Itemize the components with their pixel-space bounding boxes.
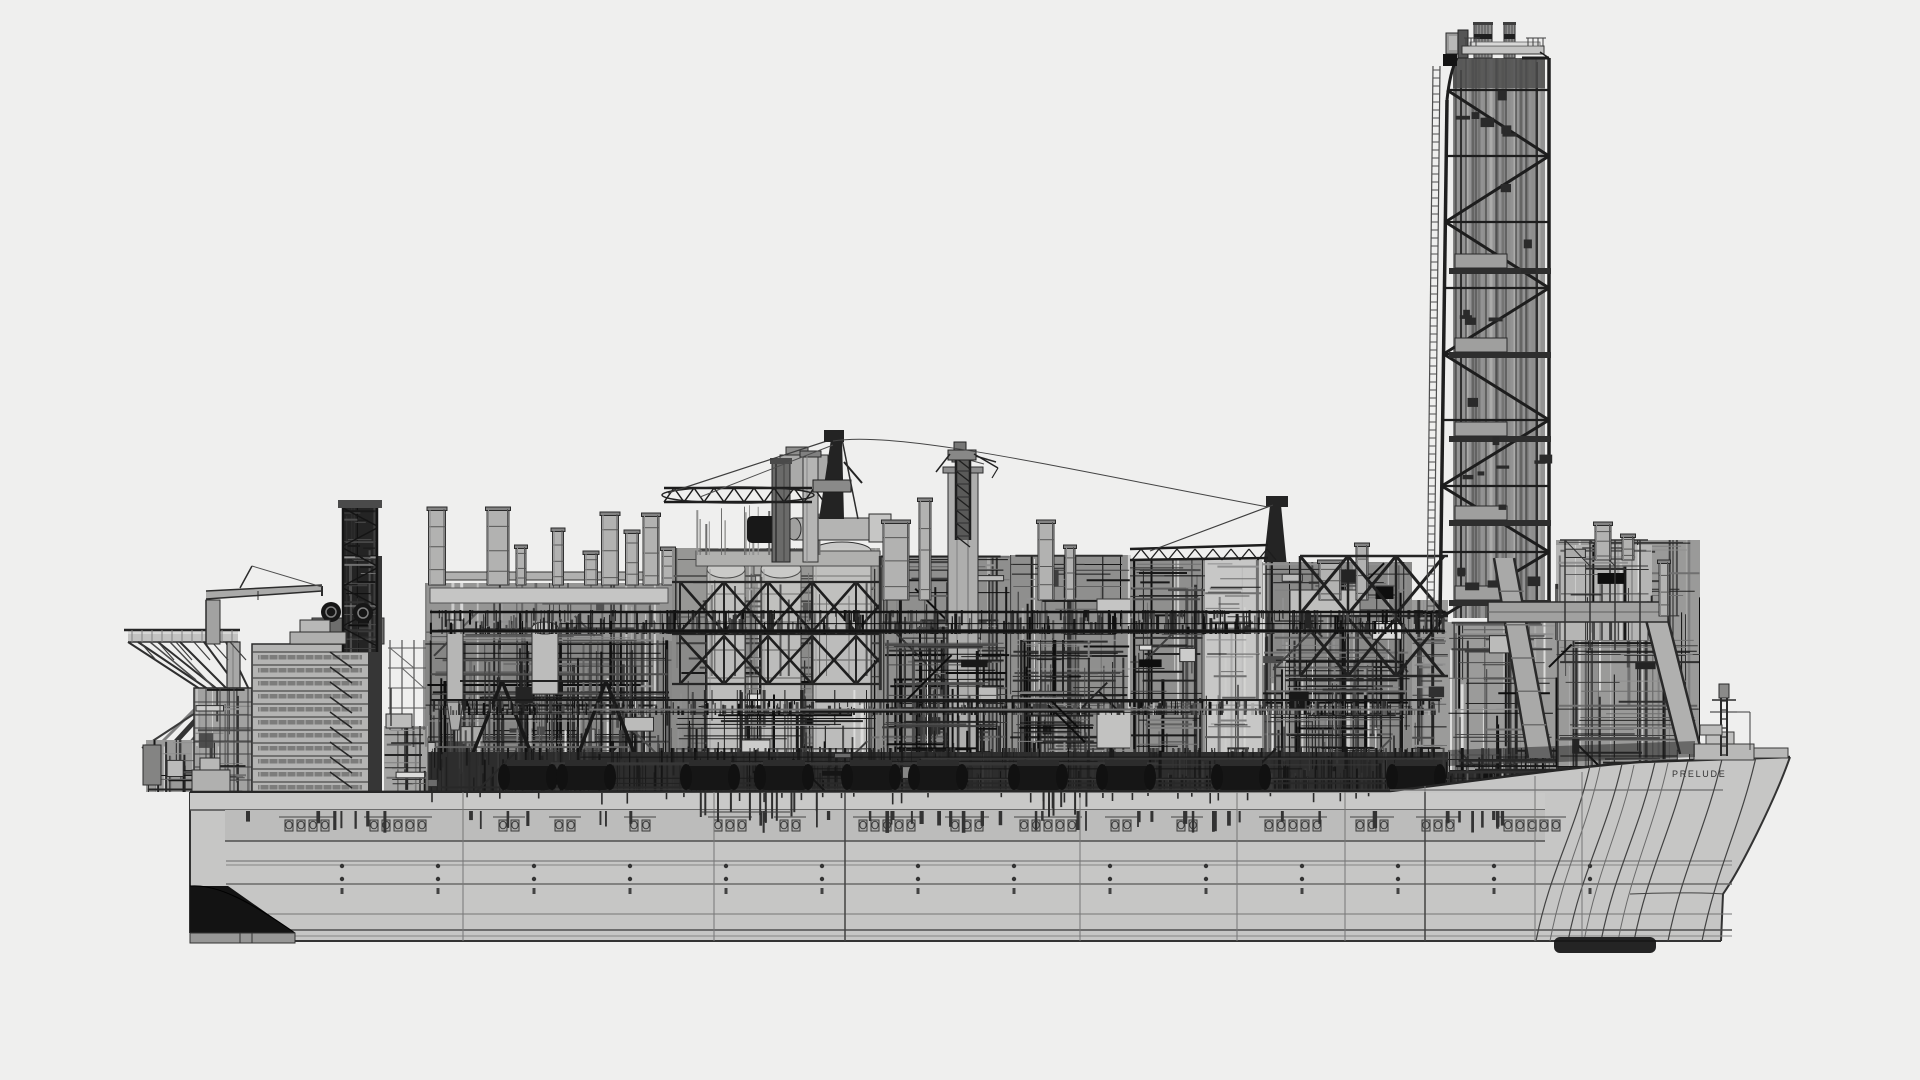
svg-text:PRELUDE: PRELUDE: [1672, 769, 1726, 779]
